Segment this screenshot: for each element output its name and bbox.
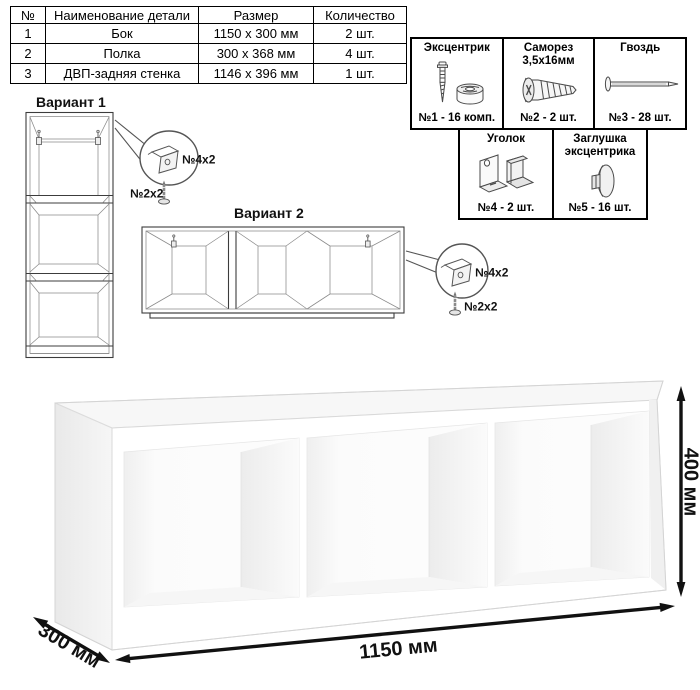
shelf-bracket-icon	[172, 235, 177, 247]
cabinet-3d-render	[55, 381, 666, 650]
bracket-count-label: №4х2	[475, 266, 509, 280]
cabinet-right-edge	[649, 400, 666, 590]
assembly-instruction-sheet: № Наименование детали Размер Количество …	[0, 0, 700, 690]
diagrams-svg: Вариант 1	[0, 0, 700, 690]
width-dimension-label: 1150 мм	[358, 634, 438, 663]
variant1-drawing	[26, 113, 113, 358]
variant2-callout: №4х2 №2х2	[406, 244, 509, 315]
screw-count-label: №2х2	[464, 300, 498, 314]
shelf-bracket-icon	[37, 130, 42, 144]
variant2-drawing	[142, 227, 404, 318]
cabinet-left-face	[55, 403, 112, 650]
height-dimension-label: 400 мм	[680, 448, 700, 517]
variant2-label: Вариант 2	[234, 205, 304, 221]
bracket-count-label: №4х2	[182, 153, 216, 167]
variant1-callout: №4х2 №2х2	[115, 120, 216, 204]
shelf-bracket-icon	[96, 130, 101, 144]
shelf-bracket-icon	[366, 235, 371, 247]
variant1-label: Вариант 1	[36, 94, 106, 110]
screw-count-label: №2х2	[130, 187, 164, 201]
